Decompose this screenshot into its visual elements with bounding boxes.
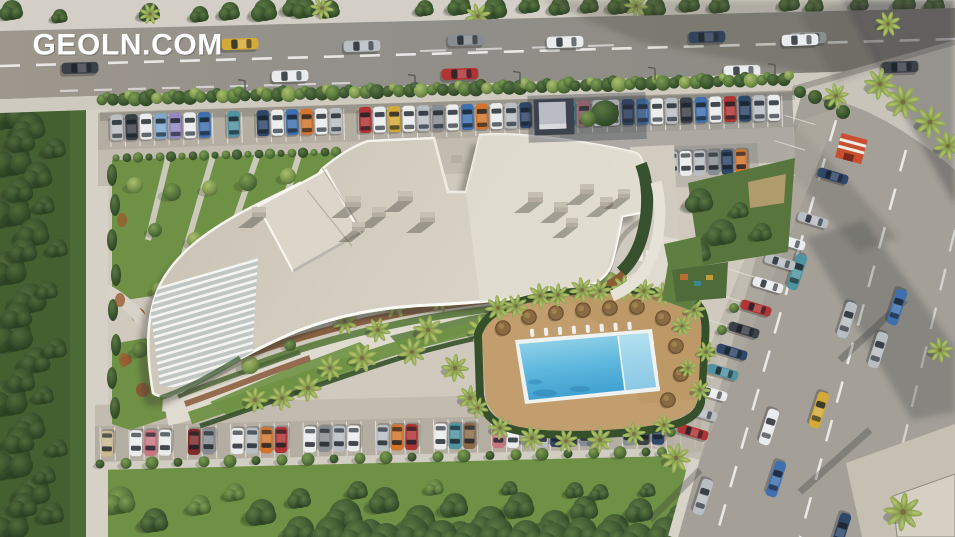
svg-text:GEOLN.COM: GEOLN.COM <box>33 29 223 62</box>
